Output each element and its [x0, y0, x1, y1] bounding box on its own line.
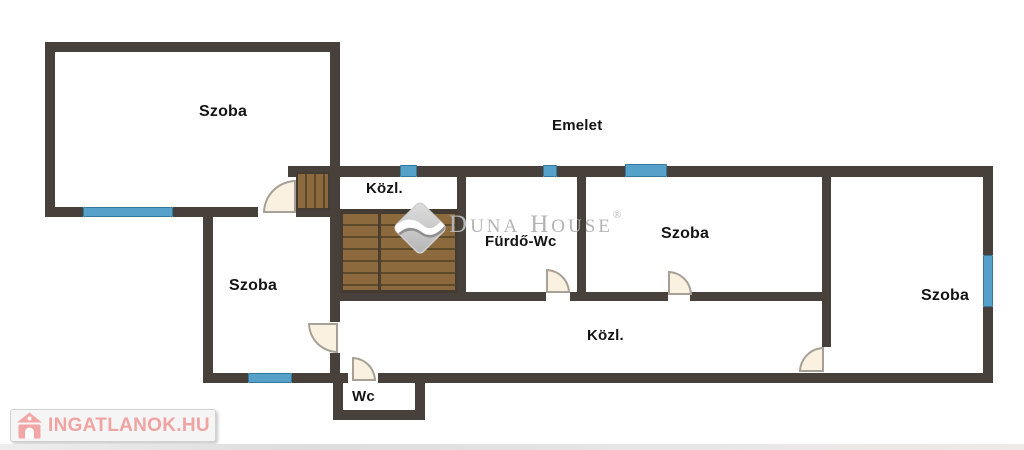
room-label-hall-upper: Közl.	[366, 180, 403, 197]
wall-segment	[203, 207, 213, 383]
window-symbol	[983, 255, 993, 307]
watermark-letter: H	[530, 211, 551, 238]
ingatlanok-logo-text: INGATLANOK.HU	[48, 415, 210, 437]
wall-segment	[570, 292, 668, 301]
wall-segment	[690, 292, 822, 301]
watermark-letters: UNA	[470, 216, 520, 237]
room-label-szoba-top-left: Szoba	[199, 103, 247, 121]
duna-house-diamond-icon	[392, 200, 448, 256]
wall-segment	[378, 373, 992, 383]
wall-segment	[45, 42, 55, 217]
window-symbol	[543, 165, 557, 177]
wall-segment	[333, 410, 425, 420]
room-label-hall-lower: Közl.	[587, 327, 624, 344]
window-symbol	[83, 207, 173, 217]
wall-segment	[983, 166, 993, 255]
window-symbol	[400, 165, 417, 177]
ingatlanok-logo: INGATLANOK.HU	[10, 409, 216, 442]
wall-segment	[173, 207, 258, 217]
wall-segment	[330, 42, 340, 177]
door-swing-symbol	[308, 323, 338, 353]
staircase-divider-line	[378, 212, 381, 292]
wall-segment	[822, 177, 831, 347]
wall-segment	[415, 378, 425, 420]
door-swing-symbol	[352, 357, 376, 381]
wall-segment	[330, 177, 340, 322]
watermark-letters: OUSE	[551, 216, 613, 237]
wall-segment	[557, 166, 625, 177]
window-symbol	[625, 164, 667, 177]
wall-segment	[667, 166, 993, 177]
registered-mark: ®	[613, 209, 621, 221]
door-swing-symbol	[668, 271, 692, 295]
floor-plan: Emelet Szoba Közl. Fürdő-Wc Szoba Szoba …	[0, 0, 1024, 450]
room-label-szoba-right: Szoba	[921, 287, 969, 305]
wall-segment	[45, 207, 83, 217]
door-swing-symbol	[546, 269, 570, 293]
door-swing-symbol	[263, 180, 296, 213]
wall-segment	[45, 42, 340, 52]
wall-segment	[340, 292, 546, 301]
window-symbol	[248, 373, 292, 383]
staircase-upper-flight	[296, 172, 330, 210]
wall-segment	[330, 353, 340, 373]
floor-title: Emelet	[552, 117, 602, 134]
bottom-edge-band	[0, 444, 1024, 450]
wall-segment	[417, 166, 543, 177]
door-swing-symbol	[799, 347, 824, 372]
room-label-wc: Wc	[352, 388, 375, 405]
watermark-letter: D	[449, 211, 470, 238]
room-label-szoba-middle: Szoba	[661, 225, 709, 243]
wall-segment	[983, 307, 993, 383]
room-label-szoba-lower-left: Szoba	[229, 277, 277, 295]
house-icon	[16, 412, 43, 439]
duna-house-watermark: DUNAHOUSE®	[449, 209, 621, 239]
